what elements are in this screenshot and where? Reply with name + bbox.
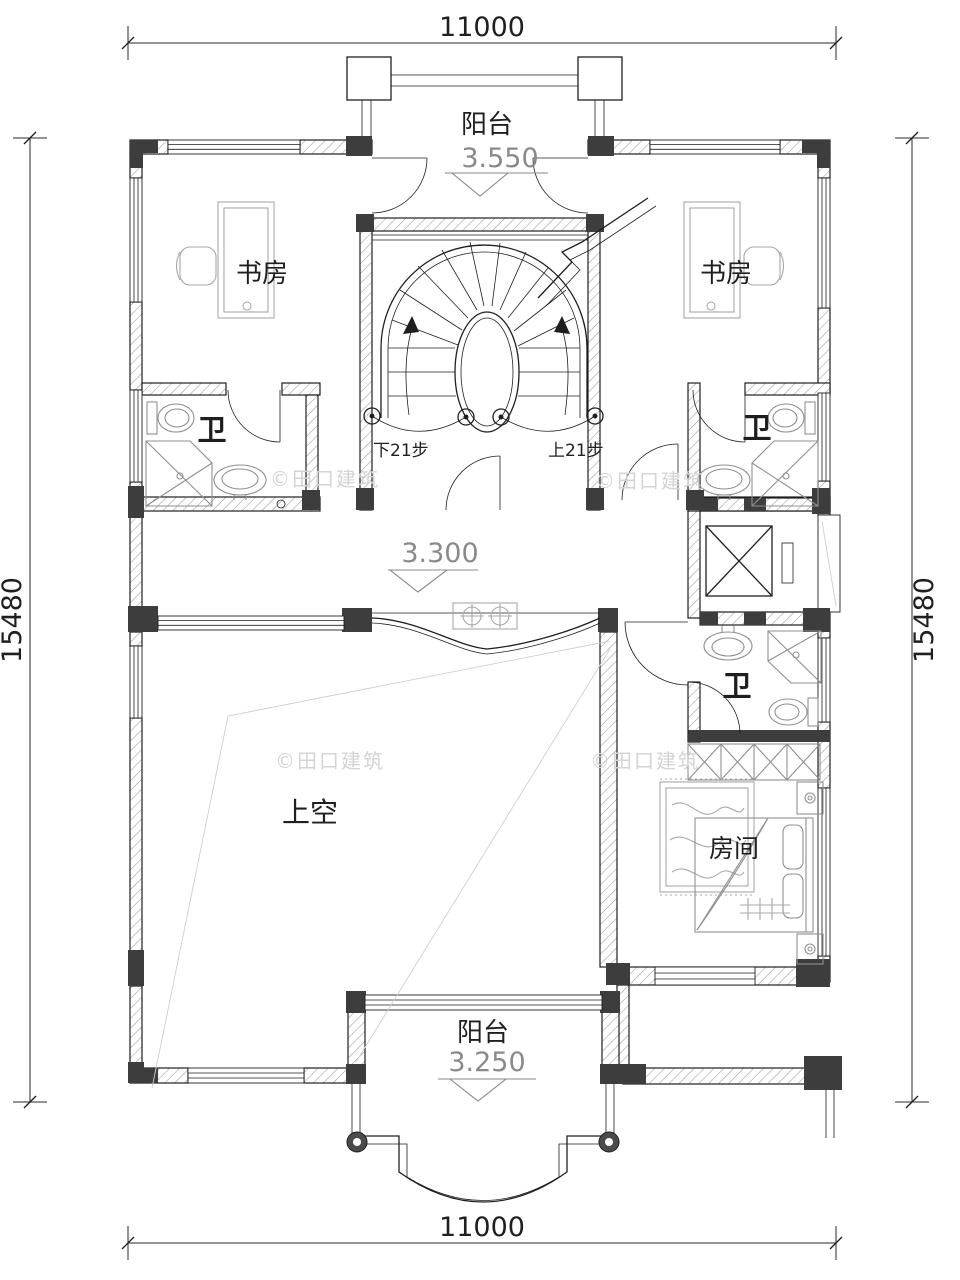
window-mid-band (158, 616, 344, 630)
stair-direction-arrows (403, 316, 570, 415)
watermark-text: ©田口建筑 (275, 749, 385, 773)
label-bedroom: 房间 (709, 834, 759, 863)
elevator-shaft (706, 526, 793, 596)
bottom-balcony (347, 1084, 619, 1202)
door-balcony-right (533, 158, 588, 213)
floor-plan: 11000 11000 15480 15480 (0, 0, 960, 1280)
label-study-right: 书房 (700, 259, 752, 289)
terrace-railing (826, 1090, 834, 1138)
door-bedroom-lobby (625, 622, 688, 685)
label-stairs-up: 上21步 (548, 441, 604, 461)
watermark-text: ©田口建筑 (270, 467, 380, 491)
toilet-fixture (147, 402, 194, 434)
sink-fixture (698, 465, 750, 500)
level-mid-value: 3.300 (401, 538, 478, 569)
window-right-study (818, 178, 830, 308)
label-bath-lower: 卫 (722, 669, 751, 703)
window-right-lower-bath (818, 638, 830, 722)
shower-fixture (146, 441, 212, 506)
window-left-study (130, 178, 142, 302)
toilet-fixture (769, 698, 818, 726)
level-bottom-value: 3.250 (448, 1047, 525, 1078)
watermark-text: ©田口建筑 (590, 749, 700, 773)
window-top-left (168, 140, 300, 154)
dimension-bottom: 11000 (122, 1212, 842, 1260)
level-marker-top: 3.550 (445, 143, 548, 196)
sink-fixture (704, 626, 752, 660)
label-stairs-down: 下21步 (373, 441, 429, 461)
window-balcony-south (365, 995, 602, 1010)
dim-top-value: 11000 (439, 12, 525, 43)
stair-treads (388, 242, 580, 396)
label-void: 上空 (282, 796, 338, 829)
bedroom-furniture (660, 779, 823, 964)
void-arch (372, 613, 600, 654)
window-left-bath (130, 390, 142, 482)
shower-fixture (768, 631, 821, 683)
curved-staircase (364, 198, 656, 432)
door-balcony-left (372, 158, 427, 213)
shower-fixture (752, 441, 818, 506)
dim-right-value: 15480 (909, 577, 940, 663)
level-marker-bottom: 3.250 (438, 1047, 536, 1101)
sink-fixture (214, 465, 266, 500)
window-left-void (130, 646, 142, 718)
dimension-left: 15480 (0, 132, 47, 1108)
window-bedroom-south (655, 967, 755, 985)
window-right-bedroom (818, 788, 830, 956)
door-stair-left (446, 456, 500, 510)
floor-plan-drawing: 11000 11000 15480 15480 (0, 0, 960, 1280)
room-labels: 阳台 书房 书房 卫 卫 下21步 上21步 上空 卫 房间 阳台 (197, 110, 771, 1048)
label-study-left: 书房 (236, 259, 288, 289)
window-top-right (650, 140, 780, 154)
door-bath-left (228, 390, 280, 442)
label-bath-right: 卫 (742, 411, 771, 445)
ceiling-light-fixture (453, 603, 517, 629)
wardrobe (688, 744, 820, 780)
dim-left-value: 15480 (0, 577, 28, 663)
label-balcony-bottom: 阳台 (457, 1018, 509, 1048)
window-bottom-left (188, 1068, 304, 1083)
level-marker-mid: 3.300 (388, 538, 479, 592)
door-bath-right (693, 390, 745, 442)
watermark-text: ©田口建筑 (595, 469, 705, 493)
dimension-top: 11000 (122, 12, 842, 60)
level-top-value: 3.550 (461, 143, 538, 174)
chair (177, 247, 217, 285)
toilet-fixture (768, 402, 815, 434)
dim-bottom-value: 11000 (439, 1212, 525, 1243)
window-right-bath (818, 393, 830, 481)
label-balcony-top: 阳台 (461, 110, 513, 140)
stair-newel-posts (364, 408, 603, 425)
void-diagonal-lines (152, 641, 610, 1088)
dimension-right: 15480 (895, 132, 940, 1108)
label-bath-left: 卫 (197, 413, 226, 447)
